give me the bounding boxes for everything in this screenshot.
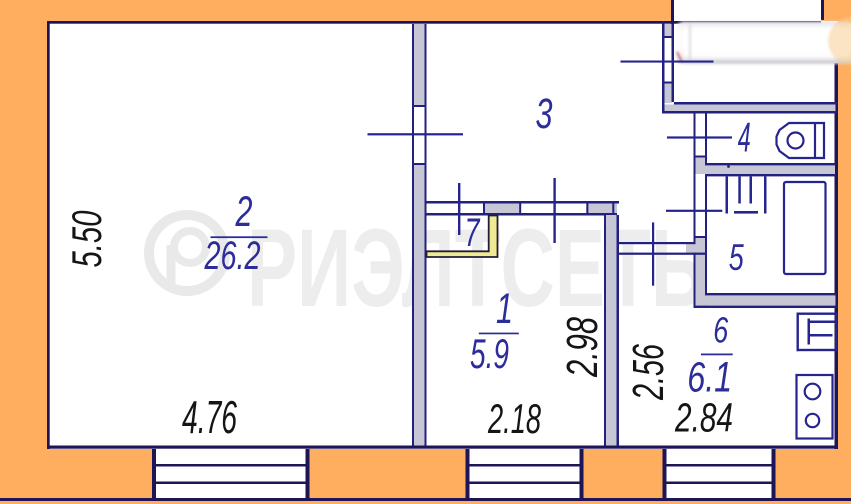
svg-text:2.18: 2.18 [487,395,541,442]
svg-text:5.50: 5.50 [63,210,110,267]
svg-text:6: 6 [713,310,729,351]
svg-text:2.98: 2.98 [558,317,607,378]
svg-text:3: 3 [536,90,553,138]
svg-text:4.76: 4.76 [182,391,237,443]
svg-text:2.84: 2.84 [674,395,733,441]
svg-text:2: 2 [235,188,253,236]
svg-text:2.56: 2.56 [624,344,673,401]
svg-text:26.2: 26.2 [204,234,261,278]
svg-text:5: 5 [729,237,744,278]
svg-text:4: 4 [738,114,751,161]
svg-text:7: 7 [465,211,481,255]
svg-text:1: 1 [496,285,513,333]
svg-text:5.9: 5.9 [470,330,509,377]
